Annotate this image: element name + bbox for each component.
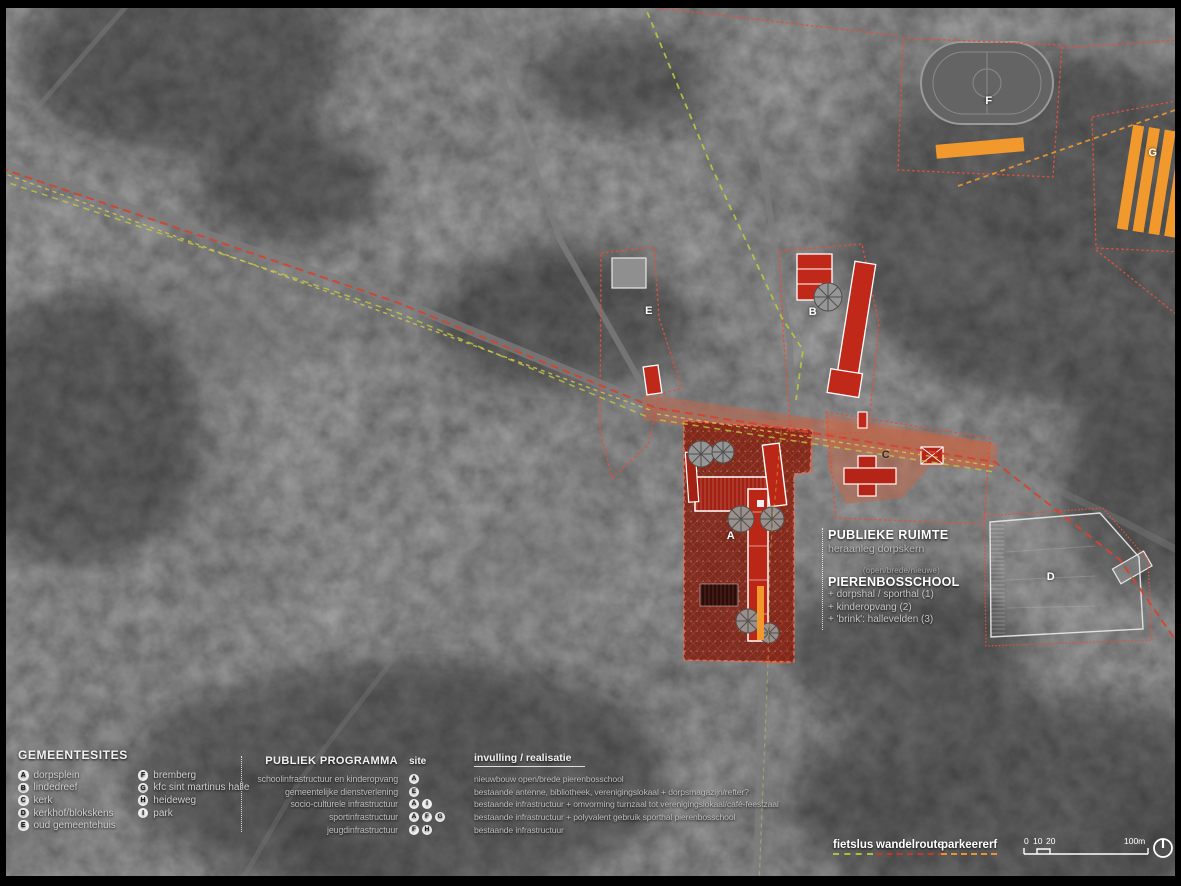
frame-left <box>0 0 6 886</box>
legend-item-label: park <box>153 808 172 819</box>
legend-item: Hheideweg <box>138 794 250 807</box>
programma-row: socio-culturele infrastructuur A I besta… <box>248 798 888 811</box>
programma-label: jeugdinfrastructuur <box>248 825 398 835</box>
site-badge: A <box>409 799 419 809</box>
publieke-ruimte-subtitle: heraanleg dorpskern <box>828 543 949 555</box>
site-badge: G <box>435 812 445 822</box>
scale-end-label: 100m <box>1124 836 1145 846</box>
site-badge: A <box>18 770 29 781</box>
programma-realisatie: bestaande antenne, bibliotheek, verenigi… <box>474 787 854 797</box>
frame-bottom <box>0 876 1181 886</box>
route-legend-label: parkeererf <box>941 839 997 851</box>
site-badge: F <box>138 770 149 781</box>
programma-label: gemeentelijke dienstverlening <box>248 787 398 797</box>
site-badge: D <box>18 808 29 819</box>
programma-realisatie: bestaande infrastructuur + polyvalent ge… <box>474 812 854 822</box>
site-badge: I <box>138 808 149 819</box>
pierenbosschool-item: + 'brink': hallevelden (3) <box>828 614 940 627</box>
frame-top <box>0 0 1181 8</box>
site-badge: H <box>138 795 149 806</box>
legend-item-label: kerk <box>34 795 53 806</box>
site-badge: B <box>18 783 29 794</box>
legend-item-label: dorpsplein <box>34 770 80 781</box>
map-label-g: G <box>1148 147 1157 159</box>
programma-row: gemeentelijke dienstverlening E bestaand… <box>248 786 888 799</box>
fietslus-line-sample <box>833 853 873 855</box>
tree-icon <box>728 506 754 532</box>
programma-row: sportinfrastructuur A F G bestaande infr… <box>248 811 888 824</box>
pierenbosschool-item: + kinderopvang (2) <box>828 602 940 615</box>
pierenbosschool-item: + dorpshal / sporthal (1) <box>828 589 940 602</box>
route-legend-fietslus: fietslus <box>833 839 873 855</box>
pierenbosschool-title: PIERENBOSSCHOOL <box>828 575 940 589</box>
map-label-c: C <box>882 449 890 461</box>
legend-item: Blindedreef <box>18 782 116 795</box>
pierenbosschool-pre: (open/brede/nieuwe) <box>828 566 940 575</box>
legend-item-label: lindedreef <box>34 782 78 793</box>
tree-icon <box>712 441 734 463</box>
publiek-programma-table: PUBLIEK PROGRAMMA site invulling / reali… <box>248 748 888 836</box>
route-legend-wandelroute: wandelroute <box>876 839 944 855</box>
sports-track <box>921 42 1053 124</box>
programma-row: jeugdinfrastructuur F H bestaande infras… <box>248 823 888 836</box>
site-column-header: site <box>409 756 463 767</box>
tree-icon <box>814 283 842 311</box>
tree-icon <box>760 507 784 531</box>
legend-item: Ipark <box>138 807 250 820</box>
north-arrow-icon <box>1150 835 1176 861</box>
programma-label: schoolinfrastructuur en kinderopvang <box>248 774 398 784</box>
scale-tick-label: 0 <box>1024 836 1029 846</box>
site-badge: A <box>409 812 419 822</box>
legend-item-label: kerkhof/blokskens <box>34 808 114 819</box>
map-label-e: E <box>645 305 653 317</box>
site-badge: C <box>18 795 29 806</box>
programma-title: PUBLIEK PROGRAMMA <box>248 755 398 767</box>
parkeererf-line-sample <box>941 853 997 855</box>
site-badge: G <box>138 783 149 794</box>
masterplan-map: A B C D E F G PUBLIEKE RUIMTE heraanleg … <box>0 0 1181 886</box>
realisatie-column-header: invulling / realisatie <box>474 752 585 767</box>
route-legend-label: fietslus <box>833 839 873 851</box>
legend-item: Eoud gemeentehuis <box>18 819 116 832</box>
scale-tick-label: 20 <box>1046 836 1056 846</box>
legend-item: Adorpsplein <box>18 769 116 782</box>
annotation-divider <box>822 528 823 630</box>
map-label-a: A <box>727 530 735 542</box>
site-badge: F <box>409 825 419 835</box>
legend-item: Fbremberg <box>138 769 250 782</box>
route-legend-parkeererf: parkeererf <box>941 839 997 855</box>
legend-item-label: kfc sint martinus halle <box>153 782 249 793</box>
tree-icon <box>688 441 714 467</box>
wandelroute-line-sample <box>876 853 944 855</box>
legend-item: Ckerk <box>18 794 116 807</box>
site-badge: I <box>422 799 432 809</box>
publieke-ruimte-annotation: PUBLIEKE RUIMTE heraanleg dorpskern <box>828 528 949 555</box>
map-label-f: F <box>985 95 992 107</box>
route-legend-label: wandelroute <box>876 839 944 851</box>
site-badge: E <box>409 787 419 797</box>
legend-item-label: bremberg <box>153 770 196 781</box>
site-badge: H <box>422 825 432 835</box>
scale-bar: 0 10 20 100m <box>1018 834 1168 860</box>
legend-item: Dkerkhof/blokskens <box>18 807 116 820</box>
gemeentesites-title: GEMEENTESITES <box>18 748 249 762</box>
programma-realisatie: bestaande infrastructuur + omvorming tur… <box>474 799 854 809</box>
legend-item: Gkfc sint martinus halle <box>138 782 250 795</box>
pierenbosschool-annotation: (open/brede/nieuwe) PIERENBOSSCHOOL + do… <box>828 566 940 627</box>
programma-label: socio-culturele infrastructuur <box>248 799 398 809</box>
programma-row: schoolinfrastructuur en kinderopvang A n… <box>248 773 888 786</box>
site-badge: F <box>422 812 432 822</box>
gemeentesites-legend: GEMEENTESITES Adorpsplein Blindedreef Ck… <box>18 748 249 832</box>
frame-right <box>1175 0 1181 886</box>
site-badge: E <box>18 820 29 831</box>
programma-realisatie: nieuwbouw open/brede pierenbosschool <box>474 774 854 784</box>
scale-tick-label: 10 <box>1033 836 1043 846</box>
programma-header-row: PUBLIEK PROGRAMMA site invulling / reali… <box>248 748 888 767</box>
site-badge: A <box>409 774 419 784</box>
programma-label: sportinfrastructuur <box>248 812 398 822</box>
programma-realisatie: bestaande infrastructuur <box>474 825 854 835</box>
legend-item-label: heideweg <box>153 795 196 806</box>
publieke-ruimte-title: PUBLIEKE RUIMTE <box>828 528 949 542</box>
tree-icon <box>736 609 760 633</box>
legend-item-label: oud gemeentehuis <box>34 820 116 831</box>
map-label-b: B <box>809 306 817 318</box>
map-label-d: D <box>1047 571 1055 583</box>
